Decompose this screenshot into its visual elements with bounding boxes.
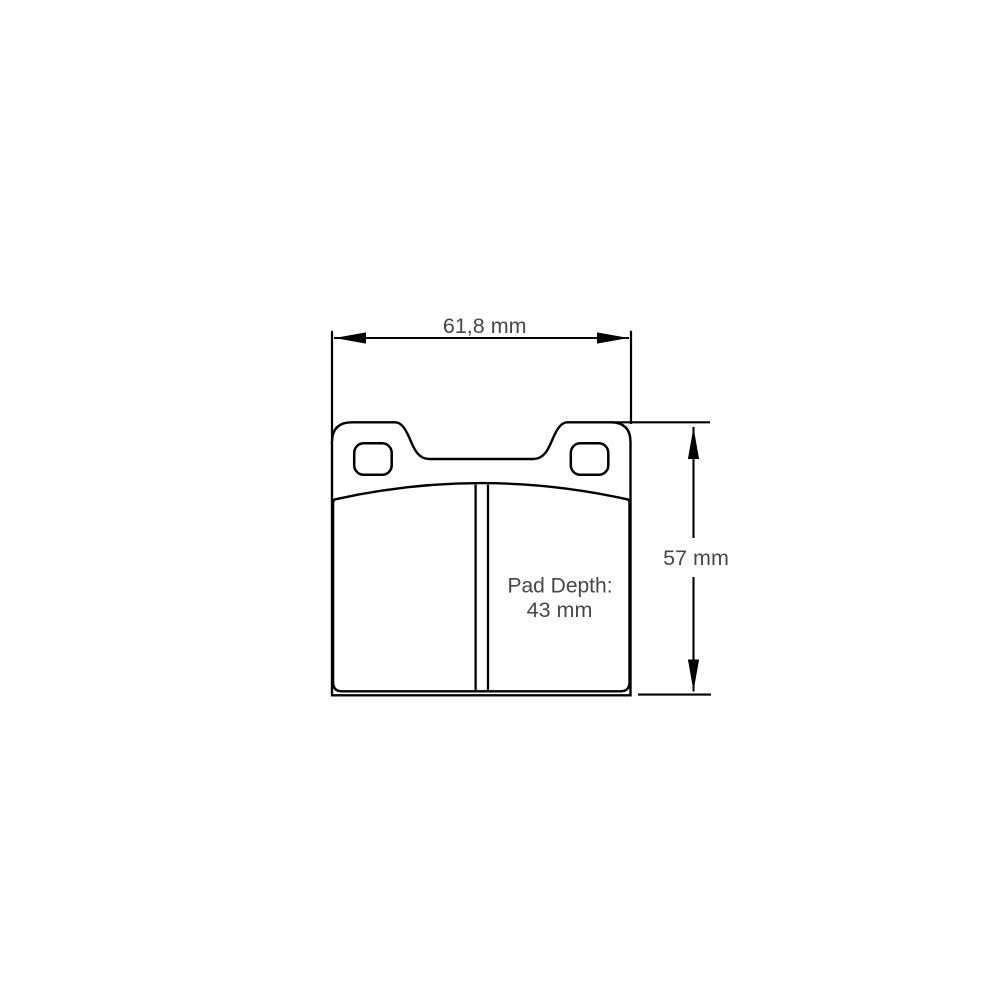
svg-text:57 mm: 57 mm [663, 546, 729, 570]
svg-text:43 mm: 43 mm [527, 598, 593, 622]
svg-text:61,8 mm: 61,8 mm [443, 314, 527, 338]
svg-text:Pad Depth:: Pad Depth: [507, 575, 612, 598]
